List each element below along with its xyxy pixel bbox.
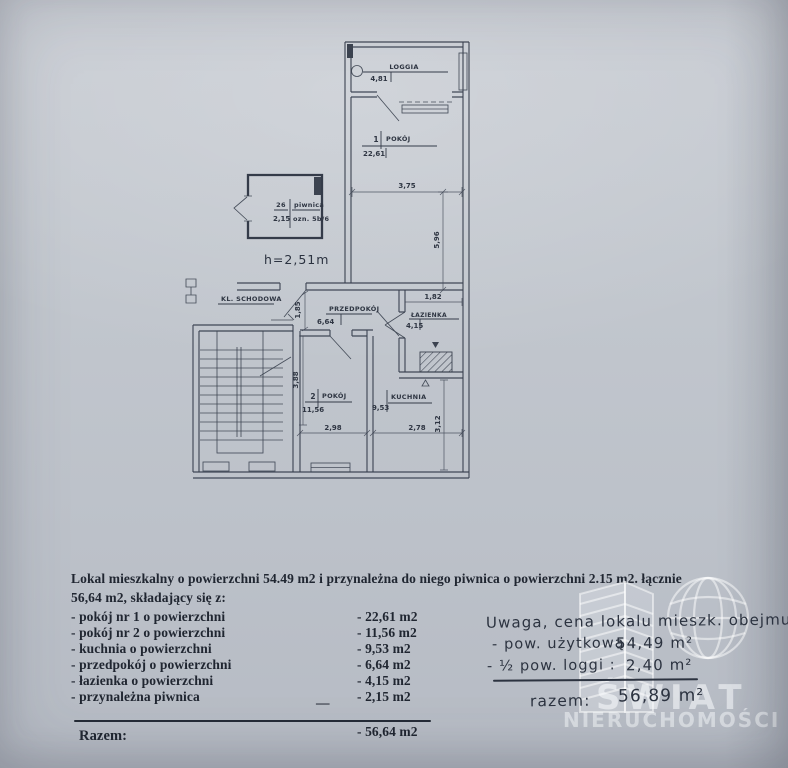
bathroom-area: 4,15 [406,322,423,330]
area-list-row: - pokój nr 2 o powierzchni - 11,56 m2 [71,625,451,641]
loggia-wall-mark [347,44,353,58]
description-line2: 56,64 m2, składający się z: [71,590,226,606]
scanned-floor-plan-page: 26 piwnica 2,15 ozn. 5b/6 h=2,51m [0,0,788,768]
dim-hall: 1,85 [294,301,302,318]
stair-rail [237,347,241,437]
watermark-brand-subtitle: NIERUCHOMOŚCI [563,708,780,732]
loggia-fixture-icon [352,66,363,77]
description-line1: Lokal mieszkalny o powierzchni 54.49 m2 … [71,571,682,587]
area-list-row: - pokój nr 1 o powierzchni - 22,61 m2 [71,609,451,625]
room2-number: 2 [310,392,315,401]
room1-number: 1 [373,135,378,144]
piwnica-height-note: h=2,51m [264,252,329,267]
room2-label: POKÓJ [322,391,346,400]
note-row1-label: - pow. użytkową : [492,635,637,653]
row-label: - przedpokój o powierzchni [71,657,231,673]
row-value: - 4,15 m2 [357,673,411,689]
hall-area: 6,64 [317,318,334,326]
row-label: - pokój nr 1 o powierzchni [71,609,225,625]
note-row2-value: 2,40 m² [626,656,693,675]
triangle-down-icon [432,342,439,348]
stair-landing-opening [203,462,229,471]
kitchen-door-swing [377,311,399,336]
dim-room1-width: 3,75 [398,182,415,190]
dim-bath-width: 1,82 [424,293,441,301]
loggia-label: LOGGIA [389,63,418,71]
room1-label: POKÓJ [386,134,410,143]
piwnica-designation: ozn. 5b/6 [293,215,330,223]
staircase-door-frame [186,279,196,303]
area-list-row: - przynależna piwnica - 2,15 m2 [71,689,451,705]
note-heading: Uwaga, cena lokalu mieszk. obejmuje: [486,610,788,631]
hall-label: PRZEDPOKÓJ [329,304,379,313]
room2-door-swing [330,336,351,359]
piwnica-inset: 26 piwnica 2,15 ozn. 5b/6 h=2,51m [234,175,330,267]
bathtub [420,352,452,372]
dim-kitchen-height: 3,12 [434,415,442,432]
stairwell-core [217,331,263,453]
row-value: - 11,56 m2 [357,625,417,641]
note-row2-label: - ½ pow. loggi : [487,657,616,674]
area-list-row: - przedpokój o powierzchni - 6,64 m2 [71,657,451,673]
row-value: - 2,15 m2 [357,689,411,705]
row-value: - 9,53 m2 [357,641,411,657]
area-list-row: - kuchnia o powierzchni - 9,53 m2 [71,641,451,657]
row-label: - łazienka o powierzchni [71,673,213,689]
stair-direction-line [260,357,291,376]
piwnica-number: 26 [276,201,286,209]
dim-room2-height: 3,88 [292,371,300,388]
bathroom-label: ŁAZIENKA [410,312,447,319]
area-list-row: - łazienka o powierzchni - 4,15 m2 [71,673,451,689]
note-total-label: razem: [530,692,591,711]
note-row1-value: 54,49 m² [616,634,693,653]
triangle-up-icon [422,380,429,386]
row-value: - 22,61 m2 [357,609,418,625]
kitchen-area: 9,53 [372,404,389,412]
note-total-rule [493,678,698,681]
piwnica-wall-mark [314,177,321,195]
floor-plan-drawing: 26 piwnica 2,15 ozn. 5b/6 h=2,51m [0,0,788,500]
dim-room2-width: 2,98 [324,424,341,432]
bathroom-door-swing [385,312,405,338]
piwnica-door-icon [234,197,247,220]
note-total-value: 56,89 m² [618,686,704,707]
room1-area: 22,61 [363,150,385,158]
total-label: Razem: [79,728,127,745]
dim-kitchen-width: 2,78 [408,424,425,432]
row-label: - kuchnia o powierzchni [71,641,212,657]
row-label: - przynależna piwnica [71,689,200,705]
row-label: - pokój nr 2 o powierzchni [71,625,225,641]
kitchen-label: KUCHNIA [391,393,426,401]
piwnica-area: 2,15 [273,215,290,223]
dim-room1-height: 5,96 [433,231,441,248]
stair-steps [200,350,283,440]
stray-dash: — [316,695,330,711]
piwnica-label: piwnica [294,201,324,209]
stair-landing-opening [249,462,275,471]
total-rule [74,720,431,722]
room2-area: 11,56 [302,406,324,414]
row-value: - 6,64 m2 [357,657,411,673]
staircase-label: KL. SCHODOWA [221,295,282,303]
balcony-door-swing [377,95,399,121]
loggia-area: 4,81 [370,75,387,83]
total-value: - 56,64 m2 [357,724,418,740]
